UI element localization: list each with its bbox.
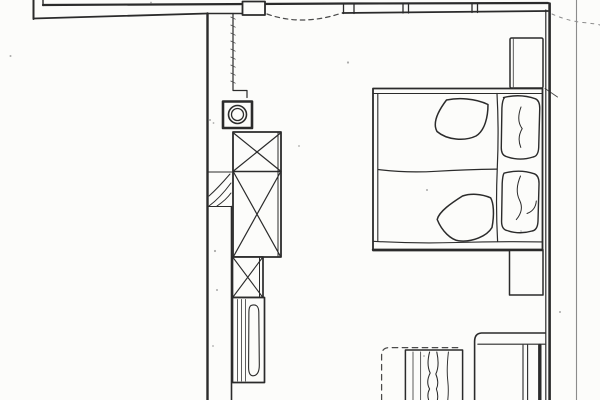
crossed-cabinet bbox=[233, 257, 264, 298]
striped-unit bbox=[233, 298, 265, 383]
vent-shaft bbox=[223, 102, 252, 129]
top-wall bbox=[34, 0, 549, 19]
small-striped-bed bbox=[405, 350, 462, 400]
scanned-floor-plan-page bbox=[0, 0, 600, 400]
blanket-wavy-line-3 bbox=[447, 352, 448, 400]
nightstand-top bbox=[510, 38, 543, 88]
double-bed bbox=[373, 89, 543, 251]
wardrobe bbox=[233, 132, 281, 257]
right-wall bbox=[546, 4, 550, 400]
blanket-wavy-line-1 bbox=[428, 352, 430, 400]
pen-tick bbox=[545, 89, 558, 98]
door-swing-arc bbox=[267, 13, 342, 20]
wall-duct-box bbox=[243, 2, 266, 16]
floor-plan-drawing bbox=[0, 0, 600, 400]
nightstand-bottom bbox=[510, 251, 544, 296]
blanket-wavy-line-2 bbox=[436, 352, 438, 400]
wall-hatch-section bbox=[209, 172, 232, 207]
bench-seat bbox=[475, 333, 545, 400]
